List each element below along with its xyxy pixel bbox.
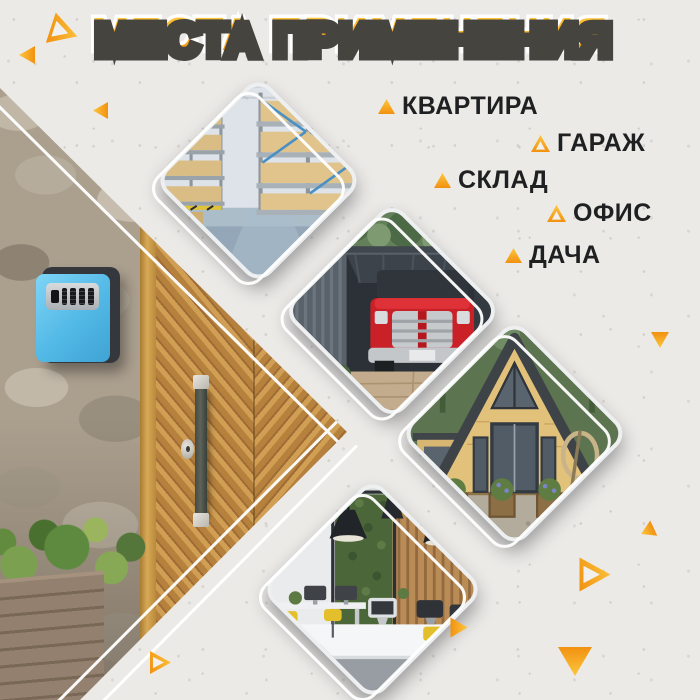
photo-warehouse — [153, 75, 364, 286]
key-safe-combination-panel — [46, 283, 99, 310]
door-handle-cap — [193, 513, 209, 527]
triangle-bullet-icon — [505, 248, 522, 263]
triangle-outline-icon — [580, 558, 611, 592]
poster: МЕСТА ПРИМЕНЕНИЯ МЕСТА ПРИМЕНЕНИЯ МЕСТА … — [0, 0, 700, 700]
key-safe-dial — [88, 288, 94, 305]
triangle-icon — [651, 332, 669, 348]
triangle-bullet-icon — [434, 173, 451, 188]
triangle-bullet-icon — [378, 99, 395, 114]
door-lock — [181, 439, 194, 459]
key-safe-dial — [62, 288, 68, 305]
list-item-garage: ГАРАЖ — [531, 129, 645, 158]
triangle-outline-bullet-icon — [531, 135, 550, 152]
key-safe-dial — [70, 288, 76, 305]
door-handle-cap — [193, 375, 209, 389]
list-item-warehouse: СКЛАД — [434, 166, 548, 195]
door-handle — [195, 388, 207, 514]
key-safe — [36, 267, 124, 369]
triangle-icon — [558, 647, 592, 676]
key-safe-front — [36, 274, 110, 362]
triangle-outline-icon — [150, 651, 171, 674]
triangle-icon — [638, 520, 658, 541]
triangle-icon — [451, 618, 468, 638]
planter-box — [0, 570, 104, 700]
list-item-dacha: ДАЧА — [505, 241, 601, 270]
list-item-apartment: КВАРТИРА — [378, 92, 538, 121]
triangle-icon — [93, 102, 108, 119]
page-title-shadow: МЕСТА ПРИМЕНЕНИЯ — [4, 14, 700, 67]
list-item-office: ОФИС — [547, 199, 652, 228]
page-title: МЕСТА ПРИМЕНЕНИЯ МЕСТА ПРИМЕНЕНИЯ МЕСТА … — [0, 8, 700, 61]
triangle-outline-bullet-icon — [547, 205, 566, 222]
key-safe-dial — [79, 288, 85, 305]
warehouse-illustration — [156, 78, 362, 284]
key-safe-button — [51, 290, 59, 303]
office-illustration — [262, 479, 482, 699]
